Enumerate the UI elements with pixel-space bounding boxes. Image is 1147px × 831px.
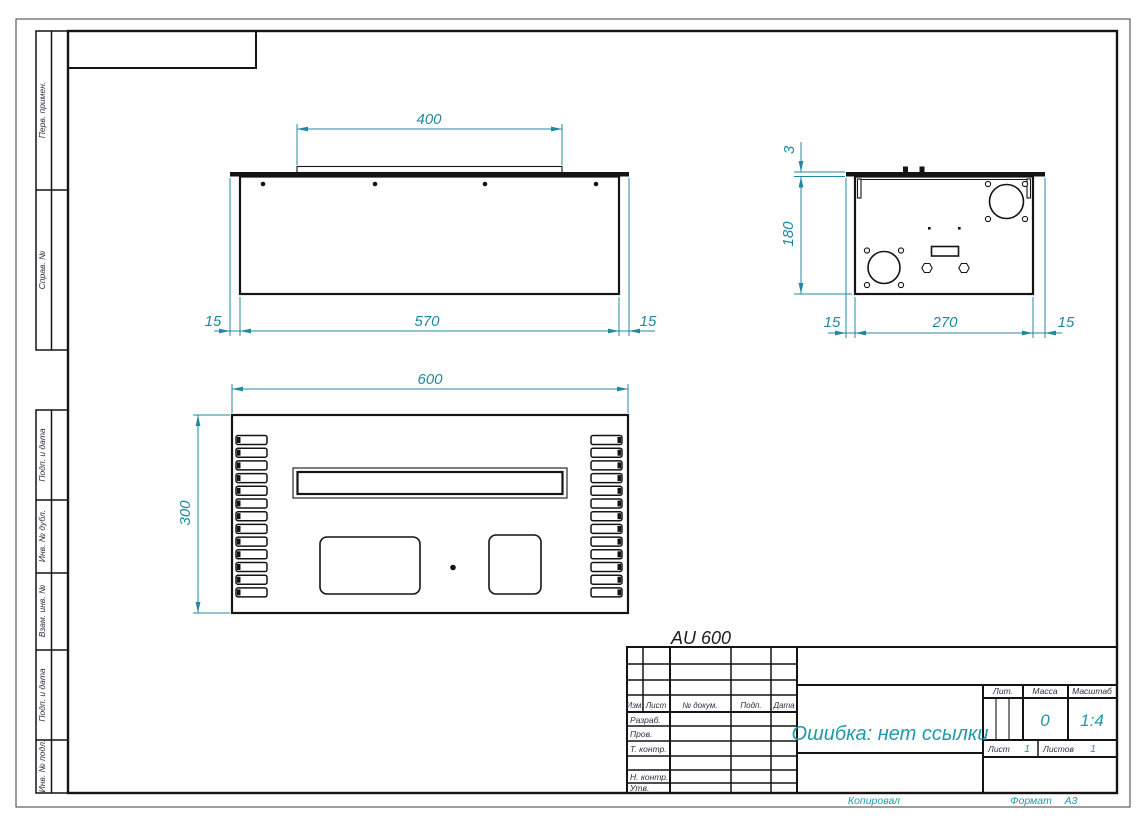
list-label: Лист (987, 744, 1010, 754)
vent-slot-cap (618, 539, 622, 545)
side-dim-height: 180 (780, 177, 852, 295)
vent-slot-cap (237, 551, 241, 557)
vent-slot (591, 512, 622, 521)
vent-slot (591, 474, 622, 483)
row-prov: Пров. (630, 729, 652, 739)
format-label: Формат (1010, 795, 1052, 807)
front-body (240, 177, 619, 295)
side-dim-left-value: 15 (824, 314, 841, 331)
vent-slot-cap (237, 539, 241, 545)
sheet-frame (16, 19, 1130, 807)
front-view: 400 15 570 15 (205, 111, 657, 336)
row-n-kontr: Н. контр. (630, 772, 668, 782)
bottom-body (232, 415, 628, 613)
vent-slot (591, 575, 622, 584)
side-dim-height-value: 180 (780, 221, 797, 247)
vent-slot-cap (237, 577, 241, 583)
vent-slot-cap (237, 589, 241, 595)
side-connector-hole-bottom-left (868, 252, 900, 284)
vent-slot-cap (237, 501, 241, 507)
vent-slot (236, 588, 267, 597)
vent-slot (236, 524, 267, 533)
margin-label-sprav-no: Справ. № (37, 251, 47, 290)
vent-slot-cap (618, 475, 622, 481)
vent-slot (591, 499, 622, 508)
vent-slot (236, 537, 267, 546)
vent-slot-cap (618, 437, 622, 443)
vent-slot (236, 512, 267, 521)
vent-slot (236, 499, 267, 508)
vent-slot-cap (618, 501, 622, 507)
vent-slot-cap (237, 513, 241, 519)
vent-slot-cap (237, 437, 241, 443)
side-dim-right-value: 15 (1058, 314, 1075, 331)
side-dim-mid-value: 270 (931, 314, 958, 331)
vent-slot (591, 486, 622, 495)
front-dim-mid-value: 570 (414, 313, 440, 330)
vent-slot (236, 461, 267, 470)
vent-slot (591, 537, 622, 546)
col-no-dokum: № докум. (682, 701, 717, 710)
vent-slot (591, 524, 622, 533)
inner-frame (68, 31, 1117, 793)
vent-slot (591, 563, 622, 572)
vent-slot (236, 563, 267, 572)
outer-border (16, 19, 1130, 807)
bottom-cutout-right (489, 535, 541, 594)
document-title: Ошибка: нет ссылки (792, 723, 989, 745)
vent-slot (591, 448, 622, 457)
top-left-stamp-box (68, 31, 256, 68)
front-dim-top: 400 (297, 111, 562, 165)
masshtab-label: Масштаб (1072, 686, 1113, 696)
col-podp: Подп. (740, 701, 761, 710)
col-data: Дата (772, 701, 795, 710)
margin-label-vzam-inv-no: Взам. инв. № (37, 585, 47, 638)
vent-slot (236, 474, 267, 483)
front-dim-top-value: 400 (416, 111, 442, 128)
vent-slot-cap (618, 488, 622, 494)
vent-slot (236, 550, 267, 559)
front-dim-left-value: 15 (205, 313, 222, 330)
side-dim-flange-value: 3 (781, 145, 798, 154)
margin-label-inv-no-dubl: Инв. № дубл. (37, 510, 47, 562)
format-value: А3 (1064, 795, 1078, 807)
massa-value: 0 (1040, 711, 1050, 730)
margin-label-podp-i-data-bottom: Подп. и дата (37, 668, 47, 721)
vent-slot-cap (618, 450, 622, 456)
side-connector-hole-top-right (990, 185, 1024, 219)
row-razrab: Разраб. (630, 715, 661, 725)
vent-slot-cap (237, 526, 241, 532)
col-izm: Изм. (626, 701, 643, 710)
vent-slot-cap (237, 450, 241, 456)
vent-slot-cap (618, 551, 622, 557)
listov-value: 1 (1090, 743, 1096, 755)
bottom-dim-height-value: 300 (177, 500, 194, 526)
vent-slot-cap (237, 488, 241, 494)
side-dim-flange: 3 (781, 142, 845, 177)
vent-slot-cap (237, 475, 241, 481)
masshtab-value: 1:4 (1080, 711, 1104, 730)
vent-slot (591, 588, 622, 597)
bottom-dim-height: 300 (177, 415, 230, 613)
margin-label-perv-primen: Перв. примен. (37, 82, 47, 139)
vent-slot-cap (618, 513, 622, 519)
row-t-kontr: Т. контр. (630, 744, 667, 754)
bottom-dim-width: 600 (232, 371, 628, 413)
lit-label: Лит. (992, 686, 1013, 696)
vent-slot-cap (618, 577, 622, 583)
row-utv: Утв. (629, 783, 649, 793)
list-value: 1 (1024, 743, 1030, 755)
vent-slot-cap (237, 462, 241, 468)
bottom-dim-width-value: 600 (417, 371, 443, 388)
margin-label-podp-i-data-top: Подп. и дата (37, 428, 47, 481)
kopiroval-label: Копировал (848, 795, 900, 807)
vent-slot (236, 575, 267, 584)
vent-slot (236, 436, 267, 445)
drawing-sheet: Перв. примен. Справ. № Подп. и дата Инв.… (0, 0, 1147, 831)
massa-label: Масса (1032, 686, 1057, 696)
vent-slot (591, 436, 622, 445)
vent-slot-cap (618, 462, 622, 468)
bottom-cutout-left (320, 537, 420, 594)
col-list: Лист (645, 701, 667, 710)
cad-drawing-canvas: Перв. примен. Справ. № Подп. и дата Инв.… (0, 0, 1147, 831)
title-block: AU 600 Изм. Лист № докум. Подп. Дата Раз… (626, 628, 1117, 807)
listov-label: Листов (1042, 744, 1075, 754)
vent-slot-cap (618, 589, 622, 595)
model-label: AU 600 (670, 628, 731, 648)
front-dim-right-value: 15 (640, 313, 657, 330)
margin-label-inv-no-podl: Инв. № подл. (37, 740, 47, 793)
vent-slot (236, 486, 267, 495)
left-margin-columns: Перв. примен. Справ. № Подп. и дата Инв.… (36, 31, 68, 793)
display-window-inner (298, 472, 563, 494)
vent-slot (236, 448, 267, 457)
vent-slot (591, 550, 622, 559)
front-top-strip (297, 167, 562, 173)
side-view: 3 180 15 270 15 (780, 142, 1075, 338)
vent-slot (591, 461, 622, 470)
vent-slot-cap (618, 526, 622, 532)
side-center-slot (932, 247, 959, 257)
vent-slot-cap (618, 564, 622, 570)
bottom-view: 600 300 (177, 371, 628, 613)
vent-slot-cap (237, 564, 241, 570)
